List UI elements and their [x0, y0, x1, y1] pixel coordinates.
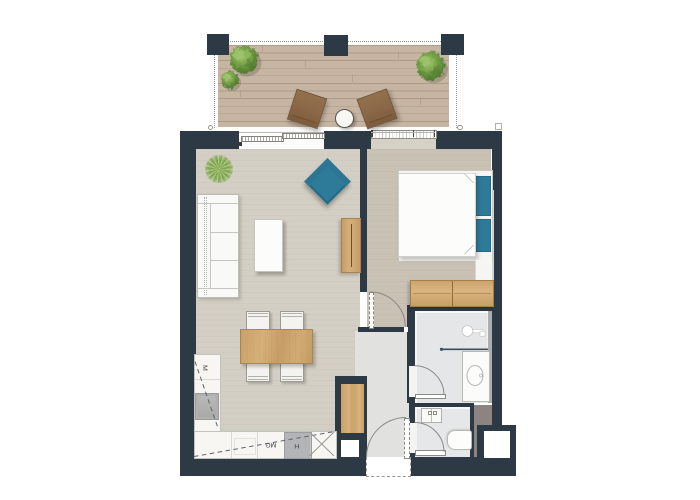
svg-text:H: H	[294, 442, 299, 449]
svg-text:M: M	[201, 365, 208, 371]
svg-text:MG: MG	[265, 441, 276, 448]
